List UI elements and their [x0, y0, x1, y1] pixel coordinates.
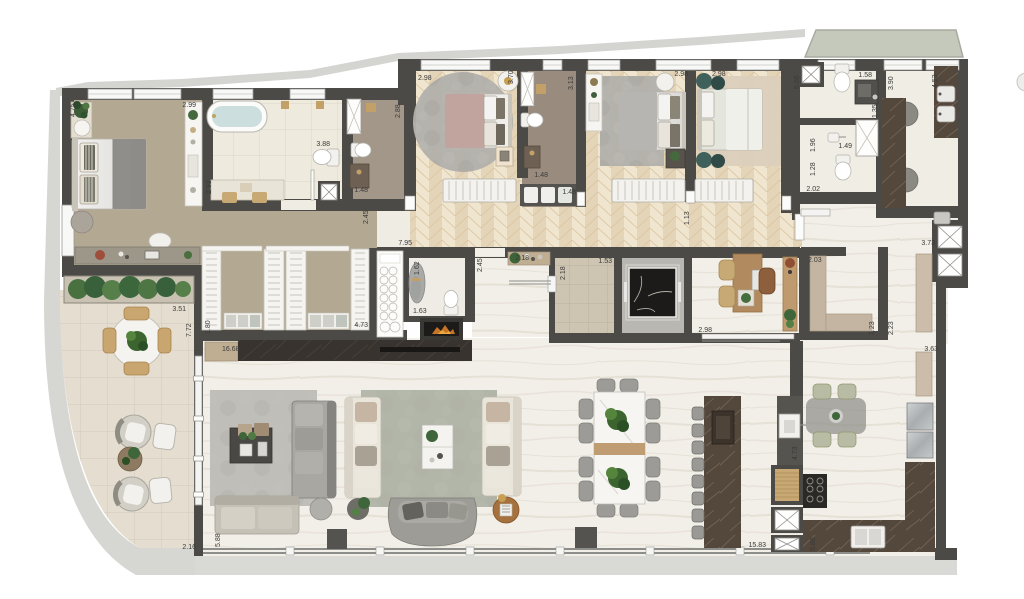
svg-text:2.03: 2.03	[808, 257, 822, 264]
svg-text:3.63: 3.63	[924, 346, 938, 353]
svg-text:1.48: 1.48	[534, 172, 548, 179]
svg-text:2.99: 2.99	[182, 102, 196, 109]
svg-text:1.96: 1.96	[810, 138, 817, 152]
svg-text:1.48: 1.48	[562, 189, 576, 196]
svg-text:1.53: 1.53	[598, 258, 612, 265]
svg-text:1.28: 1.28	[810, 162, 817, 176]
svg-text:2.23: 2.23	[888, 321, 895, 335]
svg-text:2.98: 2.98	[674, 71, 688, 78]
svg-text:2.16: 2.16	[182, 544, 196, 551]
svg-text:3.70: 3.70	[508, 70, 515, 84]
svg-text:4.75: 4.75	[70, 103, 77, 117]
svg-text:5.88: 5.88	[810, 537, 817, 551]
svg-text:2.98: 2.98	[418, 75, 432, 82]
svg-text:2.93: 2.93	[206, 180, 213, 194]
svg-text:2.45: 2.45	[363, 210, 370, 224]
svg-text:3.73: 3.73	[921, 240, 935, 247]
svg-text:3.88: 3.88	[316, 141, 330, 148]
svg-text:4.73: 4.73	[792, 446, 799, 460]
svg-text:2.23: 2.23	[869, 321, 876, 335]
svg-text:2.45: 2.45	[477, 258, 484, 272]
svg-text:2.18: 2.18	[515, 255, 529, 262]
svg-text:7.72: 7.72	[186, 323, 193, 337]
svg-text:1.58: 1.58	[858, 72, 872, 79]
svg-text:2.88: 2.88	[395, 104, 402, 118]
svg-text:4.73: 4.73	[354, 322, 368, 329]
svg-text:3.13: 3.13	[568, 76, 575, 90]
svg-text:4.53: 4.53	[932, 74, 939, 88]
svg-text:1.62: 1.62	[414, 261, 421, 275]
svg-text:16.68: 16.68	[222, 346, 240, 353]
svg-text:2.98: 2.98	[698, 327, 712, 334]
svg-text:2.98: 2.98	[712, 71, 726, 78]
svg-text:3.90: 3.90	[888, 76, 895, 90]
svg-text:7.95: 7.95	[398, 240, 412, 247]
svg-text:5.88: 5.88	[215, 533, 222, 547]
svg-text:1.35: 1.35	[872, 104, 879, 118]
svg-text:1.13: 1.13	[684, 211, 691, 225]
svg-text:1.80: 1.80	[205, 320, 212, 334]
svg-text:3.51: 3.51	[172, 306, 186, 313]
svg-text:1.48: 1.48	[354, 187, 368, 194]
svg-text:6.05: 6.05	[794, 75, 801, 89]
svg-text:2.18: 2.18	[560, 266, 567, 280]
svg-text:2.02: 2.02	[806, 186, 820, 193]
svg-text:15.83: 15.83	[748, 542, 766, 549]
svg-text:1.63: 1.63	[413, 308, 427, 315]
svg-text:1.49: 1.49	[838, 143, 852, 150]
